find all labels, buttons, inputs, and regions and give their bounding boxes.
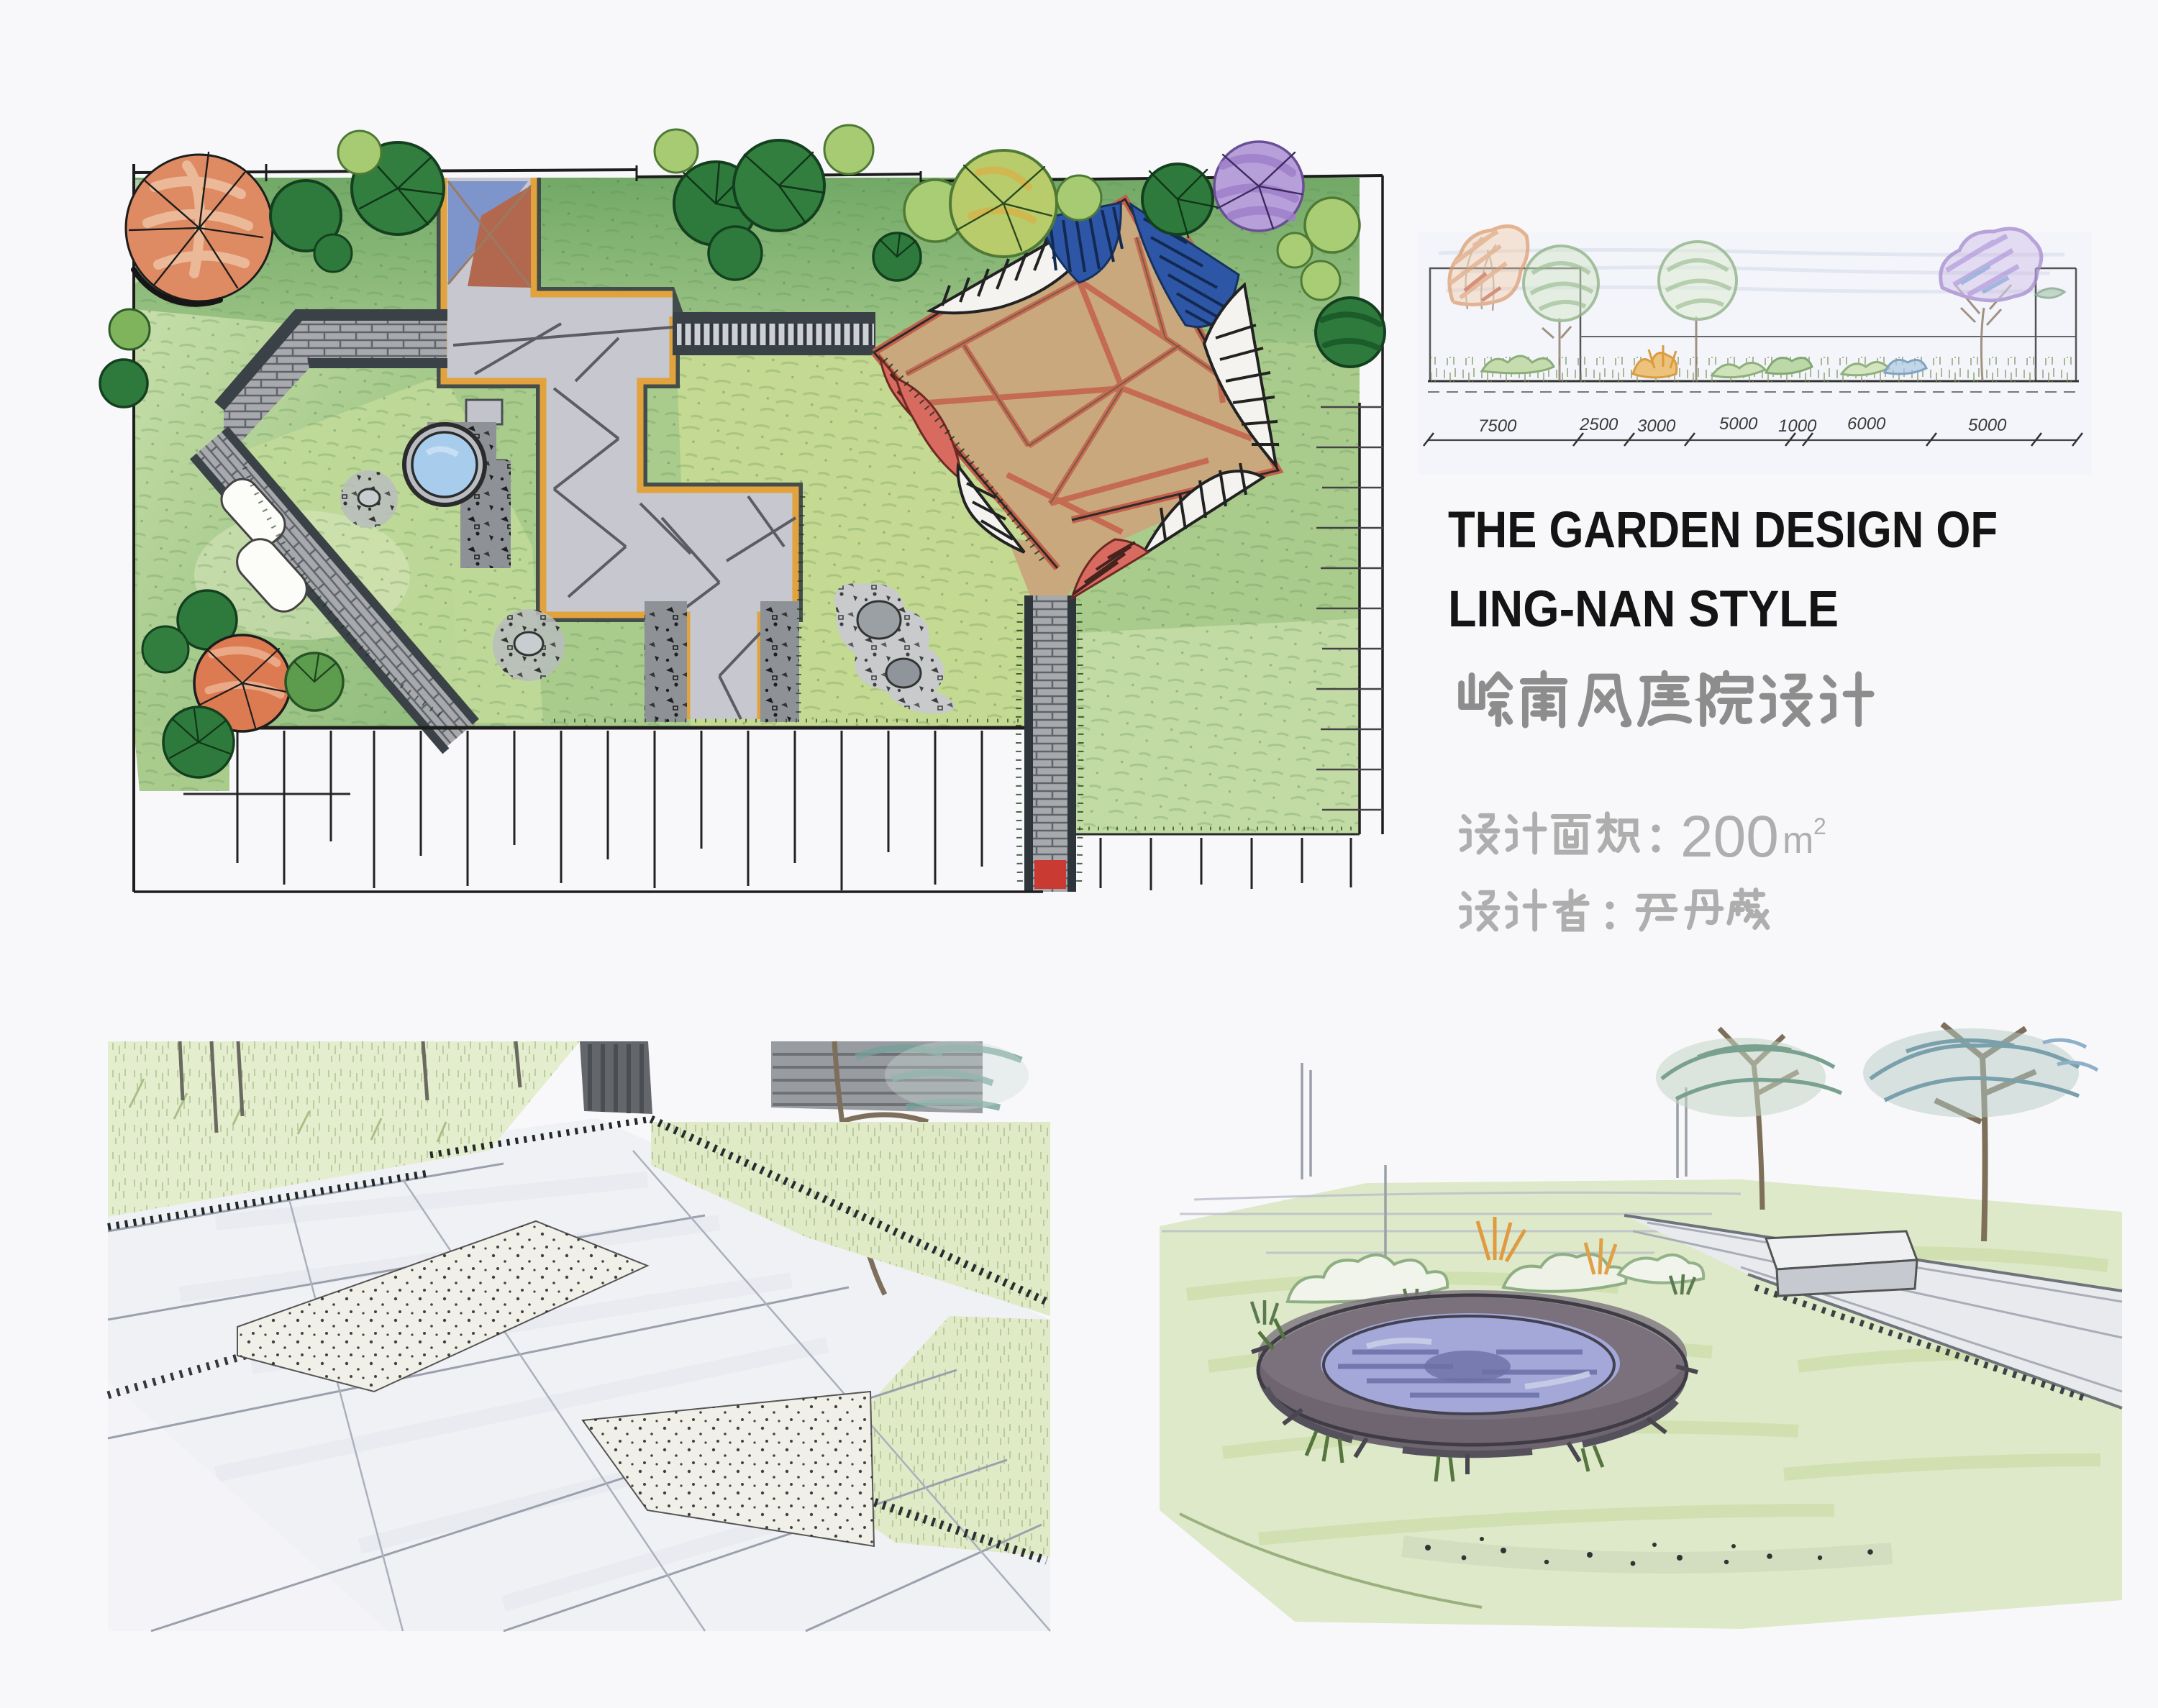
svg-text:THE GARDEN DESIGN OF: THE GARDEN DESIGN OF xyxy=(1448,502,1998,559)
svg-text:m: m xyxy=(1783,820,1813,862)
svg-text:LING-NAN STYLE: LING-NAN STYLE xyxy=(1448,581,1839,638)
svg-text:3000: 3000 xyxy=(1637,416,1676,436)
svg-text:200: 200 xyxy=(1680,804,1779,869)
svg-text:2: 2 xyxy=(1813,813,1826,839)
svg-text:2500: 2500 xyxy=(1579,415,1618,434)
svg-text:5000: 5000 xyxy=(1968,416,2007,435)
svg-text:1000: 1000 xyxy=(1778,416,1817,436)
svg-text:5000: 5000 xyxy=(1719,414,1758,434)
svg-text:6000: 6000 xyxy=(1847,414,1886,434)
svg-text:7500: 7500 xyxy=(1478,416,1517,436)
